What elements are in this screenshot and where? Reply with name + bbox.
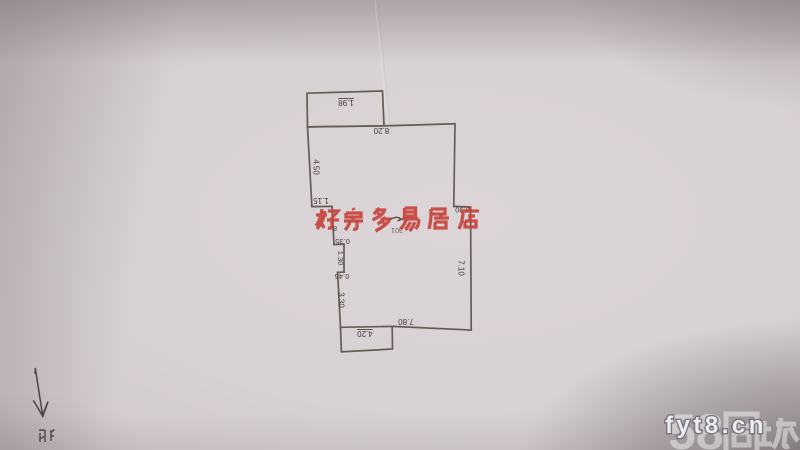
svg-text:0.45: 0.45 [335,272,350,281]
svg-text:1.15: 1.15 [313,196,329,205]
svg-text:7.80: 7.80 [398,317,414,326]
svg-text:7.10: 7.10 [457,260,466,276]
svg-text:fyt8.cn: fyt8.cn [665,412,767,439]
svg-text:1.98: 1.98 [338,98,354,107]
svg-text:0.35: 0.35 [335,237,350,246]
svg-text:8.20: 8.20 [373,126,389,135]
svg-text:3.30: 3.30 [337,292,346,308]
svg-text:1.30: 1.30 [336,251,345,266]
svg-text:4.20: 4.20 [357,329,373,338]
svg-text:4.50: 4.50 [312,159,321,175]
